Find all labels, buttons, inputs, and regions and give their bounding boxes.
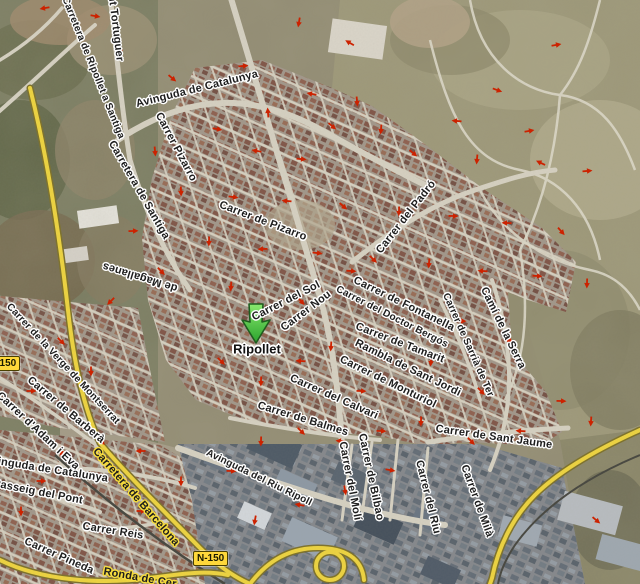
street-label: Carrer de Balmes	[256, 399, 350, 438]
route-badge-n150-bottom: N-150	[193, 551, 228, 566]
street-label: Carrer del Padró	[374, 178, 439, 256]
street-label: Passeig del Pont	[0, 477, 84, 506]
street-label: Torrent Tortuguer	[102, 0, 126, 62]
street-label: Carrer de Milà	[458, 463, 495, 539]
street-label: Carretera de Santiga	[106, 139, 172, 242]
street-label: Carrer del Riu	[413, 459, 443, 535]
street-label: Carrer de Sant Jaume	[435, 423, 553, 451]
map-canvas[interactable]: Torrent TortuguerCarretera de Ripollet a…	[0, 0, 640, 584]
street-label: Avinguda de Catalunya	[0, 453, 109, 484]
street-label: Avinguda de Catalunya	[135, 68, 260, 110]
street-label: Avinguda del Riu Ripoll	[204, 448, 313, 509]
street-label: Carrer Pineda	[22, 535, 95, 576]
street-label: Carrer Pizarro	[153, 111, 199, 184]
street-label: Ronda de Cer	[103, 566, 178, 584]
street-label: Carrer de Pizarro	[218, 199, 309, 243]
street-label: Camí de la Serra	[478, 285, 528, 371]
place-label-ripollet: Ripollet	[233, 342, 281, 357]
street-labels-layer: Torrent TortuguerCarretera de Ripollet a…	[0, 0, 640, 584]
street-label: Carrer Reis	[82, 520, 145, 541]
route-badge-n150-left: N-150	[0, 356, 20, 371]
street-label: de Magallanes	[101, 260, 179, 294]
